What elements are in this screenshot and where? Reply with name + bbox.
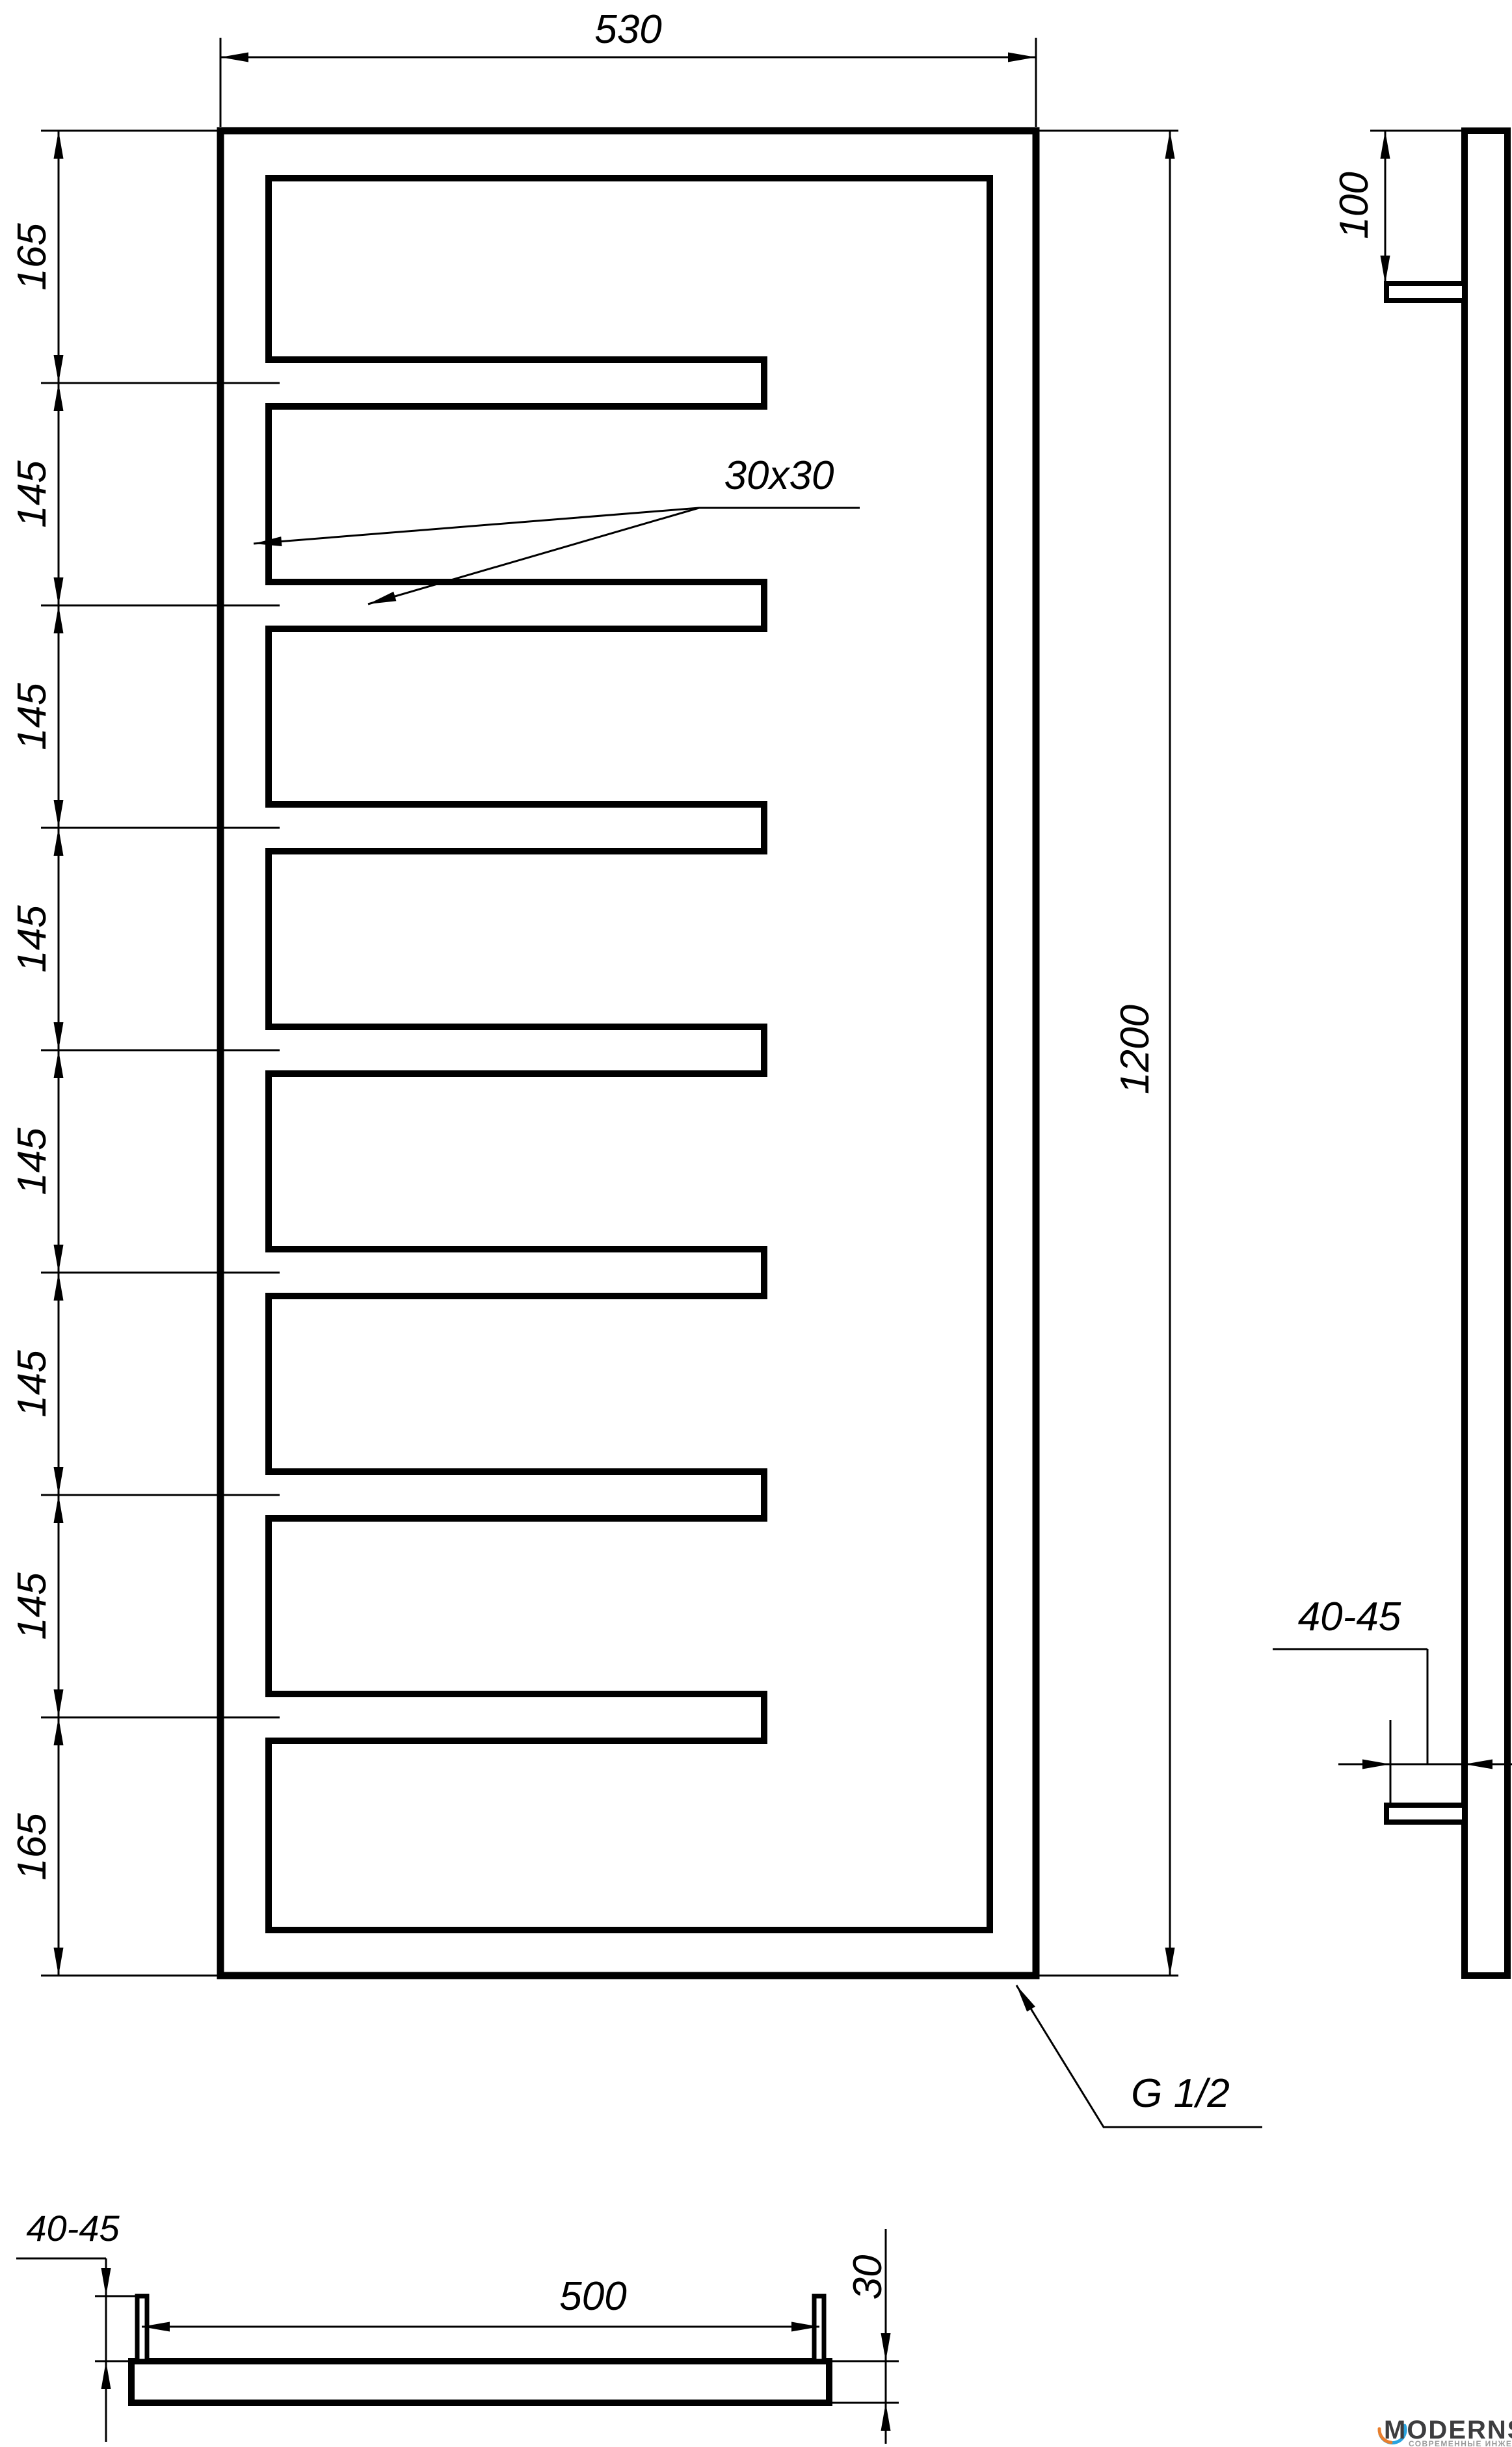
dim-530: 530: [594, 7, 661, 52]
dim-1200: 1200: [1113, 1005, 1158, 1094]
bar-4: [269, 1027, 764, 1074]
left-extension-lines: [41, 131, 280, 1976]
bottom-stud-right: [814, 2296, 824, 2361]
bar-7: [269, 1694, 764, 1741]
technical-drawing: 165 145 145 145 145 145 145 165 530 1200…: [0, 0, 1512, 2447]
side-view: 100 40-45: [1273, 131, 1512, 1976]
front-inner-boundary: [269, 178, 990, 1930]
top-dimension: 530: [220, 7, 1036, 127]
dim-145-2: 145: [10, 683, 55, 750]
dim-30: 30: [845, 2255, 890, 2300]
dim-500: 500: [559, 2274, 626, 2319]
dim-145-1: 145: [10, 460, 55, 528]
bottom-stud-left: [137, 2296, 147, 2361]
logo-tagline-text: СОВРЕМЕННЫЕ ИНЖЕНЕРНЫЕ СИСТЕМЫ: [1409, 2439, 1512, 2447]
brand-logo: MODERNSYS СОВРЕМЕННЫЕ ИНЖЕНЕРНЫЕ СИСТЕМЫ: [1379, 2416, 1512, 2447]
bottom-profile: [131, 2361, 829, 2403]
side-bracket-bottom: [1386, 1805, 1465, 1822]
dim-145-4: 145: [10, 1128, 55, 1195]
dim-40-45-side: 40-45: [1298, 1594, 1401, 1639]
side-profile: [1465, 131, 1507, 1976]
side-bracket-top: [1386, 284, 1465, 300]
bar-5: [269, 1249, 764, 1296]
drawing-canvas: 165 145 145 145 145 145 145 165 530 1200…: [0, 0, 1512, 2447]
dim-100: 100: [1332, 172, 1377, 239]
dim-145-6: 145: [10, 1572, 55, 1640]
dim-145-3: 145: [10, 905, 55, 973]
bottom-view: 40-45 500 30: [16, 2208, 899, 2444]
dim-165-top: 165: [10, 223, 55, 291]
front-view: [220, 131, 1036, 1976]
bar-2: [269, 582, 764, 629]
bar-6: [269, 1472, 764, 1518]
dim-145-5: 145: [10, 1350, 55, 1418]
dim-30x30: 30x30: [724, 453, 834, 498]
left-dimension-chain: 165 145 145 145 145 145 145 165: [10, 131, 280, 1976]
bar-1: [269, 360, 764, 406]
right-dimension: 1200: [1039, 131, 1178, 1976]
thread-callout: G 1/2: [1016, 1985, 1262, 2127]
bar-3: [269, 804, 764, 851]
dim-165-bottom: 165: [10, 1813, 55, 1881]
dim-40-45-bottom: 40-45: [26, 2208, 120, 2249]
dim-g12: G 1/2: [1131, 2071, 1230, 2116]
